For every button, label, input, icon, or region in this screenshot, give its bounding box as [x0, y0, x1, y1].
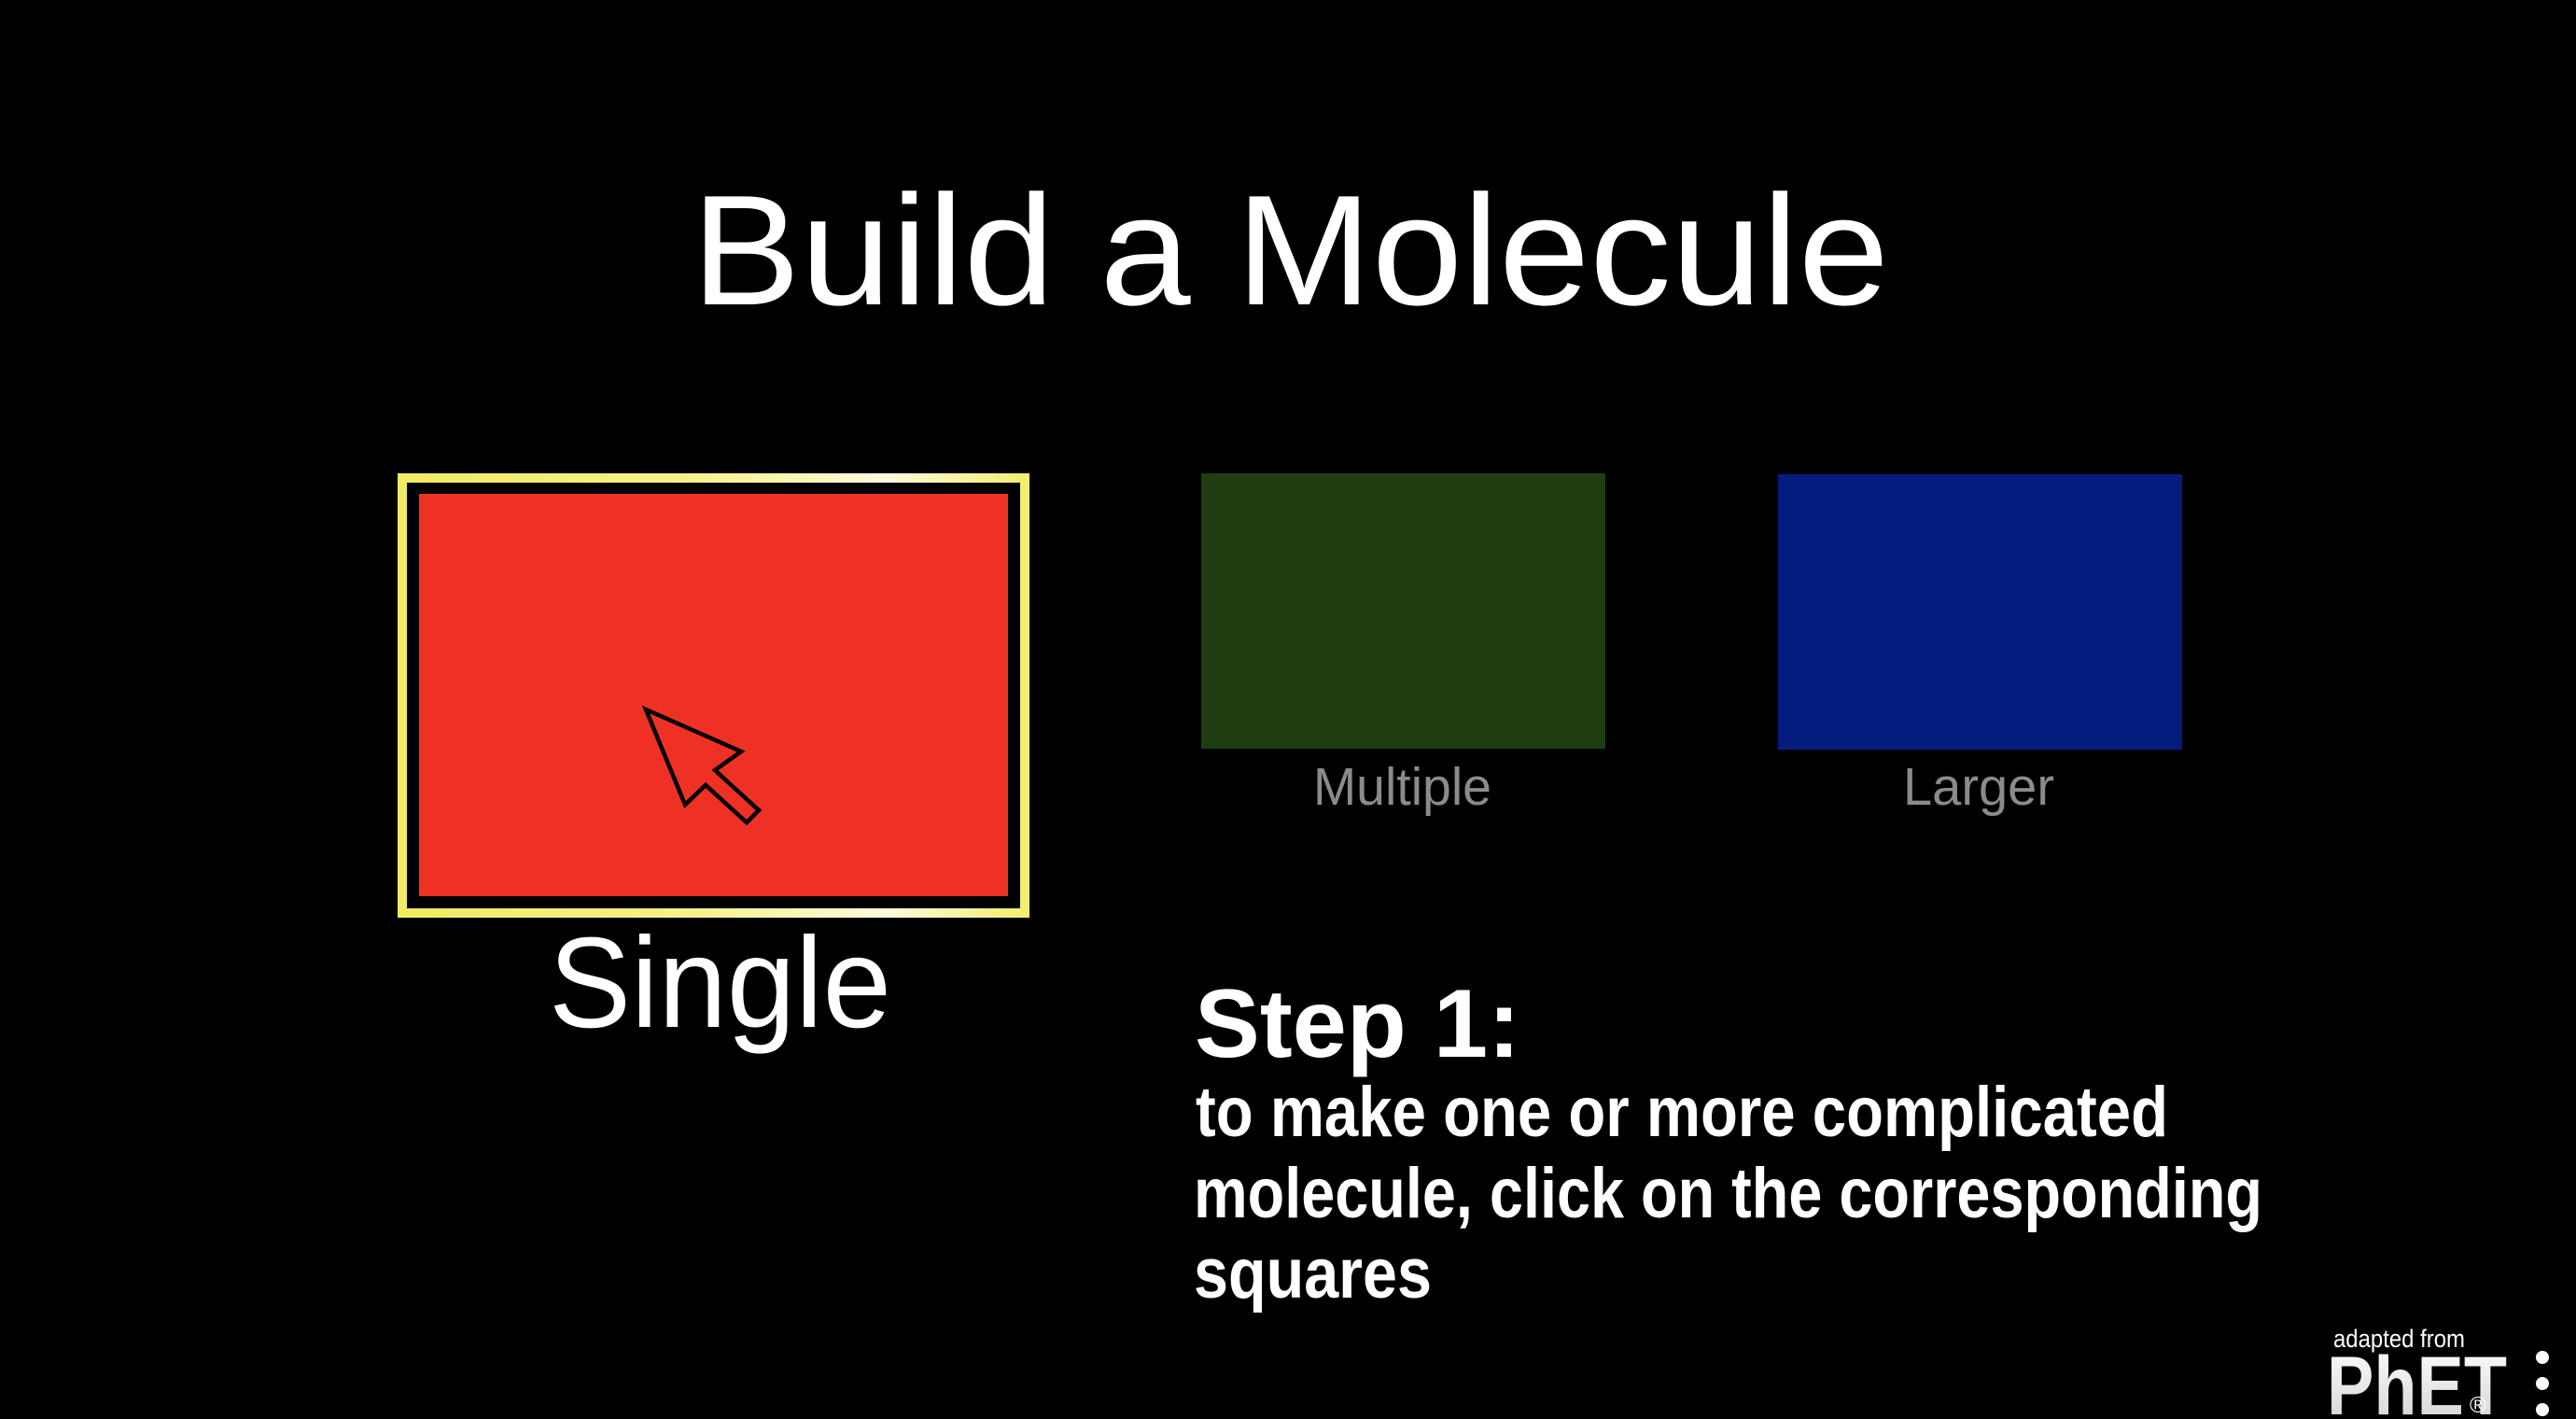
svg-text:Single: Single: [549, 911, 891, 1055]
svg-text:squares: squares: [1194, 1234, 1432, 1314]
svg-text:Multiple: Multiple: [1313, 757, 1491, 817]
svg-text:molecule, click on the corresp: molecule, click on the corresponding: [1194, 1154, 2262, 1233]
svg-text:to make one or more complicate: to make one or more complicated: [1196, 1073, 2168, 1152]
svg-text:®: ®: [2470, 1393, 2486, 1418]
svg-text:Step 1:: Step 1:: [1195, 970, 1520, 1078]
svg-text:Build a Molecule: Build a Molecule: [692, 162, 1889, 338]
svg-text:Larger: Larger: [1903, 757, 2054, 817]
